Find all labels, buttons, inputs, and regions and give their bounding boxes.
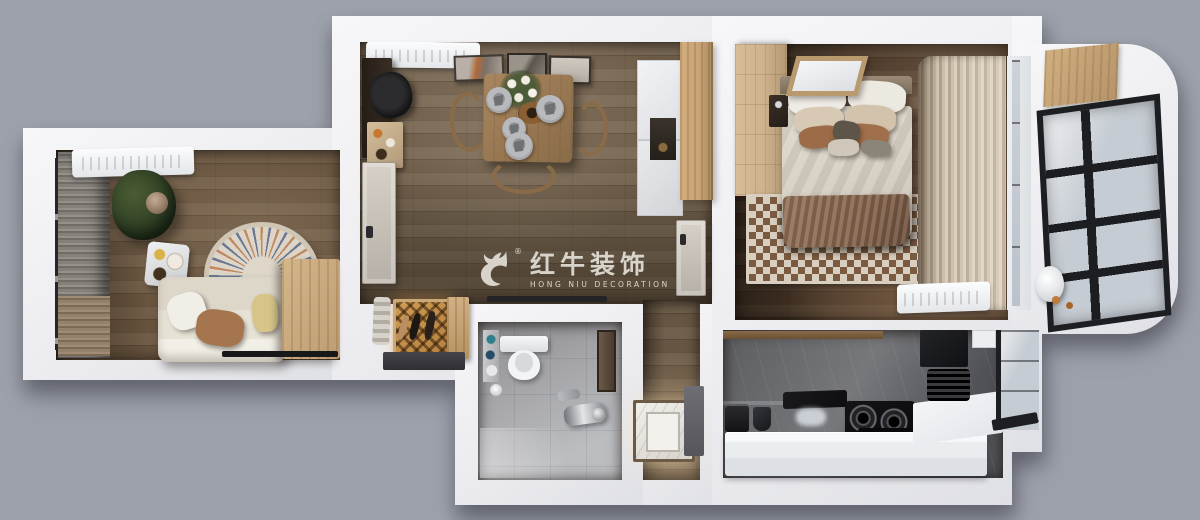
bed-pillow-small [828,138,860,156]
plant-pot [146,192,168,214]
floor-reflection [480,428,620,478]
bedroom-radiator-unit [897,281,990,313]
kitchen-appliance-black [920,330,968,367]
hanging-towel [372,297,391,346]
kitchen-backsplash-shelf [723,331,883,339]
living-room-door [362,162,396,284]
toilet-bowl [508,350,540,380]
dining-chair-bottom [492,158,556,194]
bathroom-shelf [483,330,499,382]
bathroom-window [597,330,616,392]
coffee-machine [725,404,749,432]
lower-door [684,386,704,456]
entry-door [676,220,706,296]
nightstand [769,95,788,127]
shower-knob [592,408,605,421]
living-room-window-frame [55,158,58,350]
toilet-paper-roll [490,384,502,396]
sofa-pillow-yellow [251,293,280,333]
dinner-plate [486,87,512,113]
watermark: ® 红牛装饰 HONG NIU DECORATION [476,246,676,302]
bay-window-item [1052,296,1060,304]
dinner-plate [536,95,564,123]
brand-name-zh: 红牛装饰 [530,252,670,277]
bay-window-item [1066,302,1073,309]
bedroom-sheer-curtain [918,56,1006,310]
registered-mark: ® [514,247,522,256]
living-room-curtain-tan [58,296,110,356]
tall-wood-cabinet [680,42,713,200]
entry-door-handle [680,234,686,245]
bedroom-window-glass [1012,60,1020,306]
shoe-cabinet-door [447,297,469,359]
bay-window-stool [1036,266,1064,302]
kitchen-appliance-grill [927,369,970,401]
kitchen-wall-box [972,330,996,348]
ceiling-light [786,56,869,96]
bed-throw-blanket [783,194,911,248]
door-handle [366,226,373,238]
kettle [753,407,771,431]
cabinet-niche [650,118,676,160]
bay-window-wood-panel [1043,43,1119,107]
side-table [282,259,340,359]
brand-bull-logo-icon [476,246,512,290]
tv-console [222,351,338,357]
built-in-cooktop [783,390,847,409]
brand-text: 红牛装饰 HONG NIU DECORATION [530,252,670,289]
kitchen-item [796,408,826,426]
apartment-floorplan-render: ® 红牛装饰 HONG NIU DECORATION [0,0,1200,520]
utility-niche-door [646,412,680,452]
entry-bench [383,352,465,370]
dinner-plate [505,132,533,160]
brand-name-en: HONG NIU DECORATION [530,280,670,289]
